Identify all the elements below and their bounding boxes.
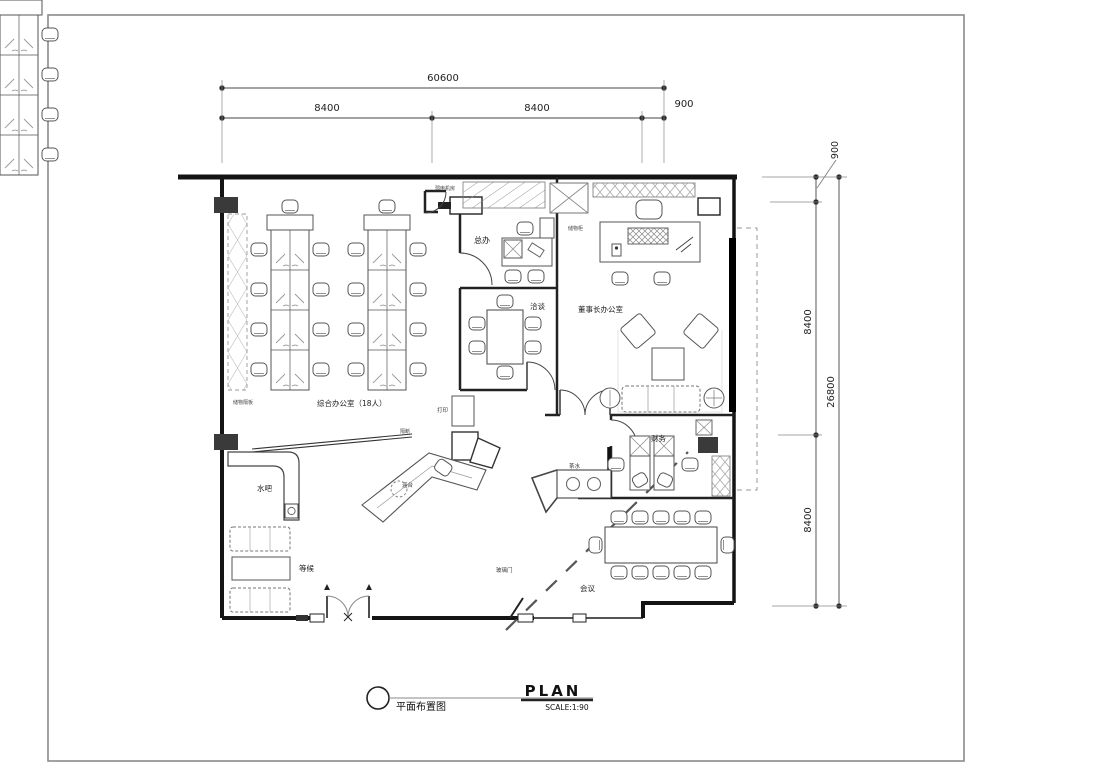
label-negotiation: 洽谈 <box>530 301 545 311</box>
floor-plan-svg: 60600 8400 8400 900 900 8400 26800 8400 <box>0 0 1104 780</box>
label-reception: 迎台 <box>402 481 414 489</box>
dim-right-900: 900 <box>830 141 841 159</box>
drawing-title-en: PLAN <box>525 682 582 700</box>
drawing-scale: SCALE:1:90 <box>545 703 589 712</box>
label-meeting: 会议 <box>580 583 595 593</box>
top-dimensions: 60600 8400 8400 900 <box>220 73 694 163</box>
dim-top-8400-left: 8400 <box>314 103 339 114</box>
dim-right-total: 26800 <box>826 376 837 408</box>
dim-right-8400-upper: 8400 <box>803 309 814 334</box>
gm-office-furniture <box>502 218 554 283</box>
label-glass-door: 玻璃门 <box>496 566 513 574</box>
balcony-dashed-outline <box>737 228 757 490</box>
label-tea-water: 茶水 <box>569 462 581 470</box>
dim-top-900: 900 <box>674 99 693 110</box>
label-waiting: 等候 <box>299 563 314 573</box>
label-printer: 打印 <box>437 406 449 414</box>
tea-counter <box>532 470 611 512</box>
title-bubble <box>367 687 389 709</box>
water-bar-waiting <box>228 452 299 612</box>
label-water-bar: 水吧 <box>257 483 272 493</box>
label-open-office: 综合办公室（18人） <box>317 398 387 408</box>
label-finance: 财务 <box>651 433 666 443</box>
storage-shelf-unit <box>228 214 247 390</box>
label-weak-current-room: 弱电机房 <box>435 185 455 192</box>
label-general-manager: 总办 <box>474 235 490 245</box>
label-partition: 隔断 <box>400 428 410 435</box>
label-chairman-office: 董事长办公室 <box>578 304 623 314</box>
title-block: 平面布置图 PLAN SCALE:1:90 <box>367 682 593 713</box>
window-band <box>729 238 736 412</box>
label-storage-cabinet: 储物柜 <box>568 225 583 232</box>
finance-furniture <box>608 436 698 490</box>
drawing-title-cn: 平面布置图 <box>396 701 446 713</box>
dim-top-total: 60600 <box>427 73 459 84</box>
drawing-sheet: 60600 8400 8400 900 900 8400 26800 8400 <box>0 0 1104 780</box>
dim-top-8400-right: 8400 <box>524 103 549 114</box>
meeting-furniture <box>589 511 734 579</box>
label-storage-shelf: 储物隔板 <box>233 399 253 406</box>
right-dimensions: 900 8400 26800 8400 <box>762 141 847 608</box>
dim-right-8400-lower: 8400 <box>803 507 814 532</box>
open-office-desks <box>0 0 426 390</box>
